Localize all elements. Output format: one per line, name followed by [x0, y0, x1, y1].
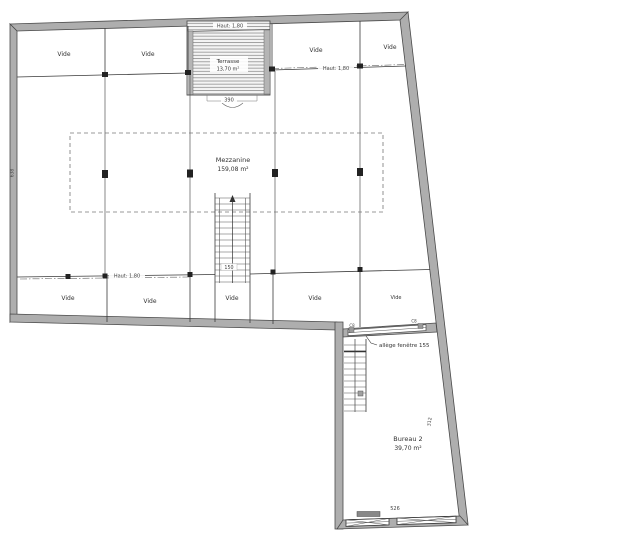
- stair-landing-marker: [358, 391, 363, 396]
- floorplan-svg: Haut: 1,80 Terrasse 13,70 m² 390 Haut: 1…: [0, 0, 640, 546]
- bureau-left-wall: [335, 322, 343, 529]
- bureau-name-label: Bureau 2: [393, 435, 422, 443]
- right-wall-dimension: 312: [426, 417, 433, 427]
- window-mark-left-label: C8: [349, 323, 355, 328]
- allege-leader-line: [366, 336, 377, 345]
- window-end-marker-left: [349, 328, 354, 333]
- mezzanine-name-label: Mezzanine: [216, 156, 250, 164]
- bureau-area-label: 39,70 m²: [394, 445, 422, 452]
- allege-label: allège fenêtre 155: [379, 342, 430, 349]
- vide-label-bottom-5: Vide: [391, 295, 402, 301]
- floorplan-page: Haut: 1,80 Terrasse 13,70 m² 390 Haut: 1…: [0, 0, 640, 546]
- vide-label-top-4: Vide: [383, 44, 396, 51]
- stairs-main: 150: [215, 193, 250, 323]
- height-left-label: Haut: 1,80: [114, 273, 140, 279]
- terrace-name-label: Terrasse: [216, 59, 240, 65]
- mezzanine-area-label: 159,08 m²: [217, 166, 249, 173]
- terrace-height-label: Haut: 1,80: [217, 24, 243, 30]
- vide-label-top-3: Vide: [309, 47, 322, 54]
- mezzanine-area: Mezzanine 159,08 m²: [70, 133, 383, 212]
- vide-label-top-2: Vide: [141, 51, 154, 58]
- stair-note-label: 150: [224, 265, 233, 271]
- bureau-bottom-windows: 526: [346, 506, 456, 526]
- stairs-bureau: [344, 339, 366, 412]
- window-mark-right-label: C8: [411, 319, 417, 324]
- column-posts: [66, 64, 364, 280]
- bottom-wall-upper-section: [10, 314, 337, 330]
- terrace: Haut: 1,80 Terrasse 13,70 m² 390: [187, 21, 270, 108]
- vide-label-bottom-1: Vide: [61, 295, 74, 302]
- vide-label-bottom-3: Vide: [225, 295, 238, 302]
- vide-label-bottom-4: Vide: [308, 295, 321, 302]
- bottom-window-dimension: 526: [390, 506, 400, 512]
- terrace-area-label: 13,70 m²: [217, 67, 240, 73]
- terrace-width-dimension: 390: [224, 98, 234, 104]
- window-sill-block: [357, 512, 380, 517]
- terrace-right-wall: [264, 30, 270, 94]
- vide-label-bottom-2: Vide: [143, 298, 156, 305]
- left-wall-dimension: 638: [10, 169, 16, 178]
- height-right-label: Haut: 1,80: [323, 66, 349, 72]
- terrace-access-arc: [222, 103, 243, 108]
- vide-label-top-1: Vide: [57, 51, 70, 58]
- stair-direction-arrow: [230, 195, 236, 202]
- window-end-marker-right: [418, 324, 423, 329]
